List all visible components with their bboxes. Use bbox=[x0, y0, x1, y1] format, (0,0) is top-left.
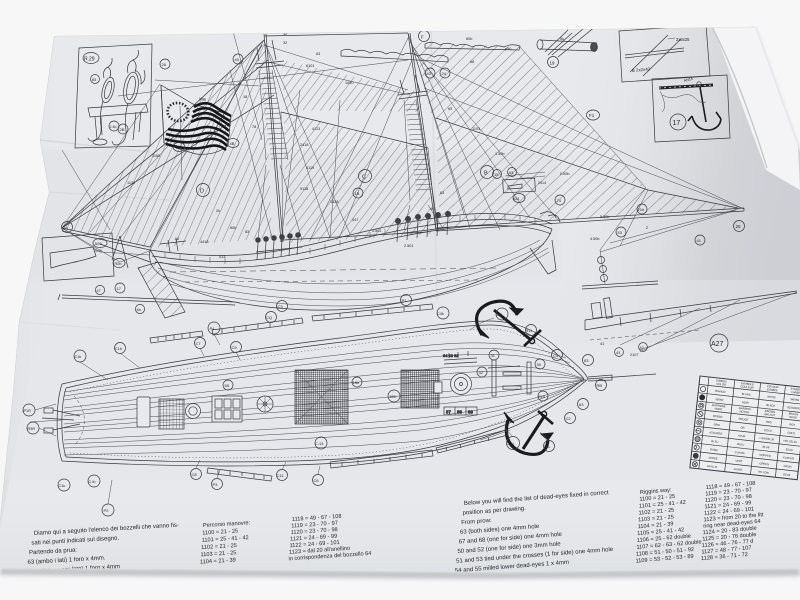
svg-text:C-lb: C-lb bbox=[89, 480, 96, 484]
svg-text:p50: p50 bbox=[505, 47, 511, 51]
svg-text:R11: R11 bbox=[526, 329, 533, 333]
svg-text:32: 32 bbox=[283, 41, 287, 45]
svg-text:ROT: ROT bbox=[789, 422, 795, 427]
svg-text:60: 60 bbox=[175, 237, 179, 241]
svg-text:C-4L: C-4L bbox=[507, 442, 515, 446]
svg-text:A24: A24 bbox=[513, 197, 519, 201]
svg-text:2x3x25: 2x3x25 bbox=[676, 37, 690, 42]
svg-text:B: B bbox=[484, 171, 488, 177]
svg-text:F: F bbox=[421, 35, 424, 40]
svg-text:GELB: GELB bbox=[783, 472, 791, 477]
svg-text:C4L: C4L bbox=[544, 445, 551, 449]
svg-text:C2: C2 bbox=[566, 416, 572, 421]
svg-text:A27: A27 bbox=[711, 341, 724, 348]
svg-text:165: 165 bbox=[389, 394, 396, 399]
svg-text:83: 83 bbox=[245, 230, 249, 234]
svg-text:C8: C8 bbox=[192, 472, 198, 477]
svg-text:19: 19 bbox=[550, 61, 556, 66]
svg-text:RB: RB bbox=[597, 383, 603, 388]
svg-text:P1: P1 bbox=[402, 298, 408, 303]
svg-text:VERT: VERT bbox=[735, 459, 743, 464]
svg-text:1.50b: 1.50b bbox=[495, 152, 505, 156]
svg-text:P1R: P1R bbox=[24, 409, 32, 413]
svg-text:R3R: R3R bbox=[28, 427, 36, 431]
svg-text:2.4b: 2.4b bbox=[110, 125, 117, 129]
svg-text:53: 53 bbox=[618, 230, 623, 235]
svg-text:NERO: NERO bbox=[715, 397, 723, 402]
svg-text:55: 55 bbox=[225, 383, 230, 388]
svg-text:BLEU: BLEU bbox=[737, 442, 744, 447]
svg-text:41: 41 bbox=[697, 238, 702, 243]
svg-text:R.29: R.29 bbox=[84, 57, 95, 63]
svg-text:C4: C4 bbox=[553, 353, 559, 358]
svg-text:C11: C11 bbox=[277, 473, 285, 478]
svg-text:C-13: C-13 bbox=[315, 442, 323, 446]
svg-text:1328: 1328 bbox=[330, 200, 338, 204]
svg-text:42: 42 bbox=[640, 346, 644, 350]
svg-text:17: 17 bbox=[117, 286, 122, 291]
svg-text:63: 63 bbox=[316, 52, 320, 56]
svg-text:4b: 4b bbox=[137, 308, 141, 312]
svg-text:C3: C3 bbox=[278, 304, 284, 309]
svg-text:63: 63 bbox=[440, 191, 444, 195]
svg-text:R1B: R1B bbox=[538, 395, 546, 399]
svg-text:F1: F1 bbox=[589, 113, 595, 118]
svg-text:C6: C6 bbox=[314, 478, 320, 483]
svg-text:2.501: 2.501 bbox=[404, 244, 414, 248]
svg-text:40: 40 bbox=[430, 207, 434, 211]
svg-text:CQ: CQ bbox=[266, 315, 272, 320]
svg-text:1132: 1132 bbox=[127, 181, 135, 185]
svg-text:6101: 6101 bbox=[306, 64, 314, 68]
svg-text:C1k: C1k bbox=[75, 355, 82, 359]
svg-text:26: 26 bbox=[162, 62, 167, 67]
svg-text:C9: C9 bbox=[232, 345, 238, 350]
svg-text:41: 41 bbox=[600, 342, 604, 346]
svg-text:4.50b: 4.50b bbox=[590, 237, 600, 241]
svg-text:C: C bbox=[362, 175, 366, 181]
svg-text:31: 31 bbox=[491, 353, 496, 358]
svg-text:BLUE: BLUE bbox=[762, 445, 770, 450]
svg-text:2x40: 2x40 bbox=[94, 249, 102, 253]
svg-text:BLAU: BLAU bbox=[786, 447, 793, 452]
svg-text:C4k: C4k bbox=[437, 312, 444, 316]
svg-text:94 93 92: 94 93 92 bbox=[443, 353, 459, 358]
svg-text:65: 65 bbox=[448, 107, 452, 111]
svg-text:NUSS: NUSS bbox=[789, 415, 797, 420]
svg-text:88: 88 bbox=[457, 410, 462, 415]
svg-text:1F: 1F bbox=[176, 145, 181, 150]
svg-text:87: 87 bbox=[446, 410, 451, 415]
svg-text:P2: P2 bbox=[104, 508, 110, 513]
svg-text:NOIR: NOIR bbox=[742, 400, 749, 405]
svg-text:43: 43 bbox=[616, 351, 620, 355]
svg-text:78: 78 bbox=[252, 125, 256, 129]
svg-text:4.501: 4.501 bbox=[372, 229, 382, 233]
svg-text:40: 40 bbox=[235, 57, 240, 62]
svg-text:4113: 4113 bbox=[312, 127, 320, 131]
svg-text:013: 013 bbox=[219, 255, 225, 259]
svg-text:1B: 1B bbox=[355, 191, 360, 196]
svg-text:AZUR: AZUR bbox=[738, 434, 746, 439]
svg-text:5.50b: 5.50b bbox=[600, 215, 610, 219]
svg-text:R2b: R2b bbox=[115, 262, 122, 266]
svg-text:60b: 60b bbox=[466, 37, 472, 41]
svg-text:9118: 9118 bbox=[300, 187, 308, 191]
svg-text:47: 47 bbox=[97, 289, 101, 293]
svg-text:17: 17 bbox=[673, 120, 681, 127]
svg-text:P3: P3 bbox=[213, 482, 219, 487]
svg-text:4119: 4119 bbox=[306, 166, 314, 170]
svg-text:GOLD: GOLD bbox=[764, 428, 772, 433]
svg-text:21b: 21b bbox=[638, 207, 645, 212]
svg-text:63: 63 bbox=[579, 402, 584, 407]
svg-text:32: 32 bbox=[479, 370, 484, 375]
svg-text:40: 40 bbox=[427, 71, 432, 76]
svg-text:16b: 16b bbox=[353, 380, 360, 385]
svg-text:1103: 1103 bbox=[472, 127, 480, 131]
svg-text:68: 68 bbox=[470, 60, 474, 64]
svg-text:89: 89 bbox=[468, 410, 473, 415]
svg-text:4B: 4B bbox=[230, 141, 235, 146]
svg-text:OR: OR bbox=[740, 425, 745, 429]
svg-text:A3: A3 bbox=[509, 170, 515, 175]
svg-text:BLEU: BLEU bbox=[711, 439, 718, 444]
svg-text:2418: 2418 bbox=[300, 143, 308, 147]
svg-text:4418: 4418 bbox=[200, 240, 208, 244]
svg-text:ORO: ORO bbox=[713, 422, 720, 427]
svg-text:24: 24 bbox=[442, 71, 447, 76]
svg-text:25: 25 bbox=[736, 224, 742, 229]
svg-text:1150: 1150 bbox=[152, 154, 160, 158]
svg-text:74: 74 bbox=[557, 198, 562, 203]
svg-text:0.50b: 0.50b bbox=[560, 172, 570, 176]
svg-text:447: 447 bbox=[352, 218, 358, 222]
svg-text:2k: 2k bbox=[216, 209, 220, 213]
svg-text:C1b: C1b bbox=[115, 347, 122, 351]
svg-text:P4: P4 bbox=[210, 326, 216, 331]
svg-text:2B: 2B bbox=[120, 127, 125, 132]
svg-text:18: 18 bbox=[243, 95, 247, 99]
svg-text:83: 83 bbox=[92, 77, 97, 82]
svg-text:2414: 2414 bbox=[538, 181, 546, 185]
svg-text:30: 30 bbox=[537, 362, 542, 367]
svg-text:2107: 2107 bbox=[630, 353, 638, 357]
svg-text:RED: RED bbox=[766, 420, 772, 425]
svg-text:D: D bbox=[200, 189, 204, 195]
svg-text:C4L: C4L bbox=[496, 313, 503, 317]
svg-text:C1k: C1k bbox=[59, 484, 66, 488]
svg-text:2A: 2A bbox=[63, 226, 69, 231]
svg-text:GOLD: GOLD bbox=[787, 431, 795, 436]
svg-text:63: 63 bbox=[584, 358, 589, 363]
svg-text:C7: C7 bbox=[196, 341, 202, 346]
svg-text:1050: 1050 bbox=[345, 81, 353, 85]
svg-text:15: 15 bbox=[494, 172, 499, 177]
svg-text:A20: A20 bbox=[95, 241, 103, 246]
